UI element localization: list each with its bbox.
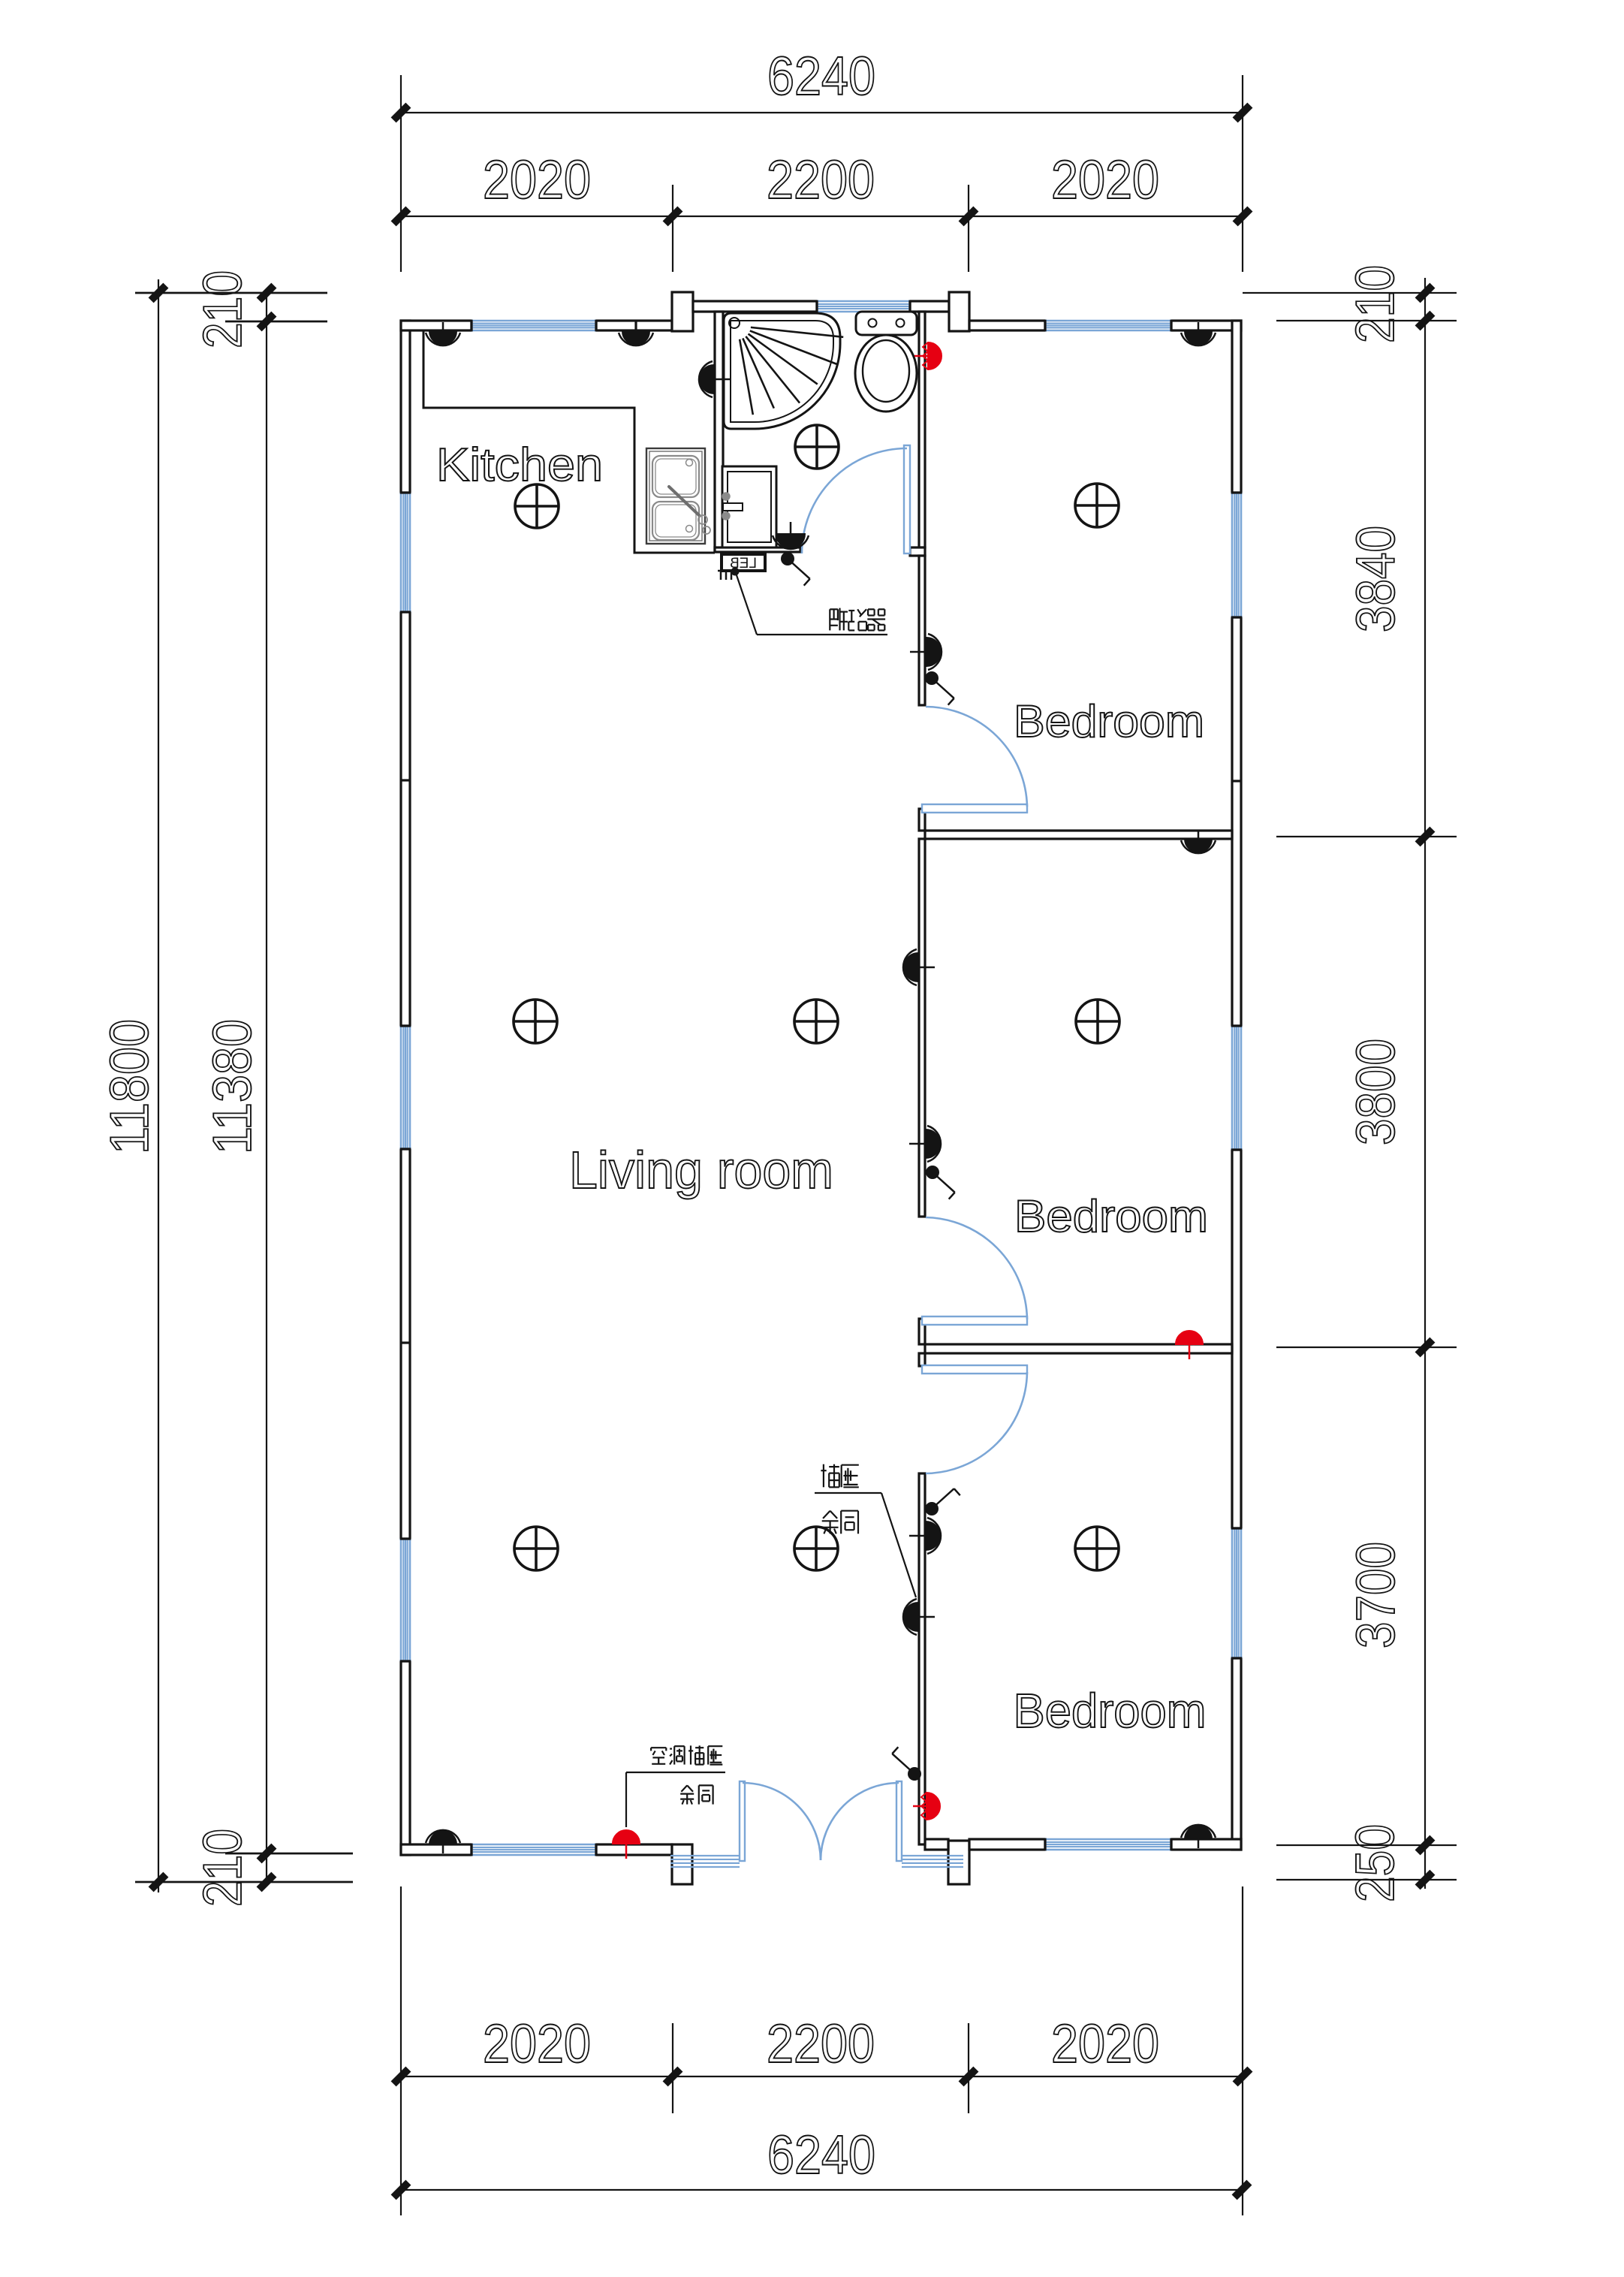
svg-text:11800: 11800 [100,1019,160,1154]
svg-text:2020: 2020 [483,150,591,210]
svg-text:6240: 6240 [767,47,875,107]
svg-text:Living room: Living room [569,1141,833,1199]
svg-text:2200: 2200 [767,2014,875,2074]
svg-text:Kitchen: Kitchen [436,439,603,491]
svg-text:Bedroom: Bedroom [1014,1684,1207,1738]
svg-text:2020: 2020 [1051,2014,1159,2074]
svg-text:3840: 3840 [1346,526,1406,632]
svg-text:250: 250 [1345,1824,1406,1902]
svg-text:2020: 2020 [1051,150,1159,210]
svg-text:210: 210 [193,1829,253,1907]
svg-text:210: 210 [1345,265,1406,343]
svg-text:210: 210 [193,270,253,348]
svg-text:Bedroom: Bedroom [1014,696,1204,746]
svg-text:2020: 2020 [483,2014,591,2074]
svg-text:6240: 6240 [767,2125,875,2185]
svg-text:2200: 2200 [767,150,875,210]
svg-text:3800: 3800 [1346,1039,1406,1145]
svg-text:Bedroom: Bedroom [1014,1191,1208,1241]
svg-text:11380: 11380 [203,1019,263,1154]
svg-text:3700: 3700 [1346,1542,1406,1648]
